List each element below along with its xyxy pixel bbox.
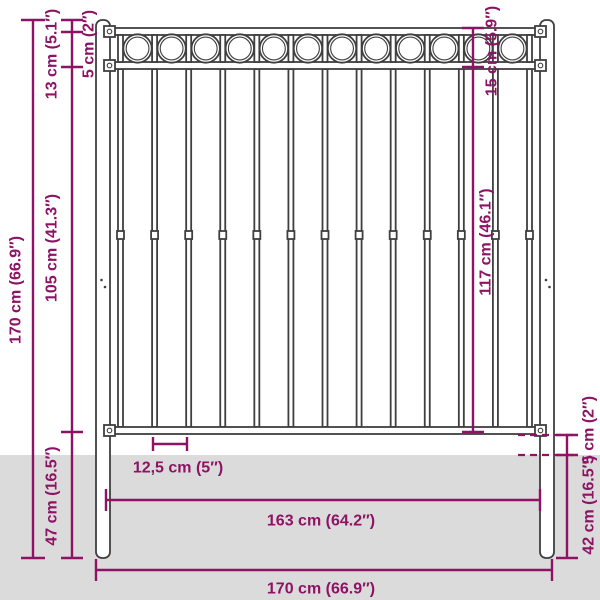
label-panel-height-left: 105 cm (41.3″) [44,194,61,302]
ring-outer [396,34,424,62]
bar-joint [185,231,192,239]
bar-joint [424,231,431,239]
ring-spacer [118,35,123,62]
ring-outer [226,34,254,62]
ring-spacer [220,35,225,62]
ring-spacer [288,35,293,62]
ring-outer [498,34,526,62]
ring-spacer [323,35,328,62]
ring-outer [362,34,390,62]
bar-joint [322,231,329,239]
bar-joint [287,231,294,239]
ring-outer [294,34,322,62]
bracket [535,60,546,71]
fence-dimension-diagram: 170 cm (66.9″) 13 cm (5.1″) 5 cm (2″) 10… [0,0,600,600]
ring-spacer [254,35,259,62]
vertical-bar [357,69,362,427]
diagram-canvas: 170 cm (66.9″) 13 cm (5.1″) 5 cm (2″) 10… [0,0,600,600]
bar-joint [356,231,363,239]
bracket [104,60,115,71]
left-post [96,20,110,558]
label-rail-to-ground-right: 5 cm (2″) [581,396,598,464]
label-panel-height-right: 117 cm (46.1″) [478,188,495,295]
label-underground-right: 42 cm (16.5″) [581,455,598,554]
bar-joint [526,231,533,239]
vertical-bar [220,69,225,427]
bar-joint [458,231,465,239]
vertical-bar [459,69,464,427]
ring-spacer [425,35,430,62]
dim-line-bar-spacing [153,437,187,451]
bar-joint [151,231,158,239]
ring-outer [260,34,288,62]
bar-joint [390,231,397,239]
vertical-bars-group [118,69,532,427]
label-panel-width: 163 cm (64.2″) [267,513,375,530]
vertical-bar [186,69,191,427]
ring-spacer [152,35,157,62]
ring-outer [430,34,458,62]
bar-joint [253,231,260,239]
ring-spacer [459,35,464,62]
left-post-hole [104,286,107,289]
vertical-bar [323,69,328,427]
ring-outer [192,34,220,62]
left-post-hole [100,279,103,282]
right-post-hole [545,279,548,282]
label-bar-spacing: 12,5 cm (5″) [133,460,223,477]
right-post-hole [548,286,551,289]
bar-joint [219,231,226,239]
label-ring-section-left: 13 cm (5.1″) [44,9,61,99]
bracket [104,26,115,37]
vertical-bar [152,69,157,427]
ring-outer [157,34,185,62]
label-top-offset-left: 5 cm (2″) [81,10,98,78]
ring-outer [123,34,151,62]
vertical-bar [254,69,259,427]
ring-spacer [357,35,362,62]
bar-joint [117,231,124,239]
label-total-height-left: 170 cm (66.9″) [8,236,25,344]
ring-spacer [186,35,191,62]
right-post [540,20,554,558]
bar-joints-group [117,231,533,239]
bracket [535,26,546,37]
ring-spacer [527,35,532,62]
bracket [104,425,115,436]
vertical-bar [425,69,430,427]
label-below-rail-left: 47 cm (16.5″) [44,446,61,545]
vertical-bar [391,69,396,427]
ring-spacer [391,35,396,62]
label-top-section-right: 15 cm (5.9″) [484,6,501,96]
vertical-bar [118,69,123,427]
label-total-width: 170 cm (66.9″) [267,581,375,598]
ring-outer [328,34,356,62]
vertical-bar [527,69,532,427]
vertical-bar [288,69,293,427]
